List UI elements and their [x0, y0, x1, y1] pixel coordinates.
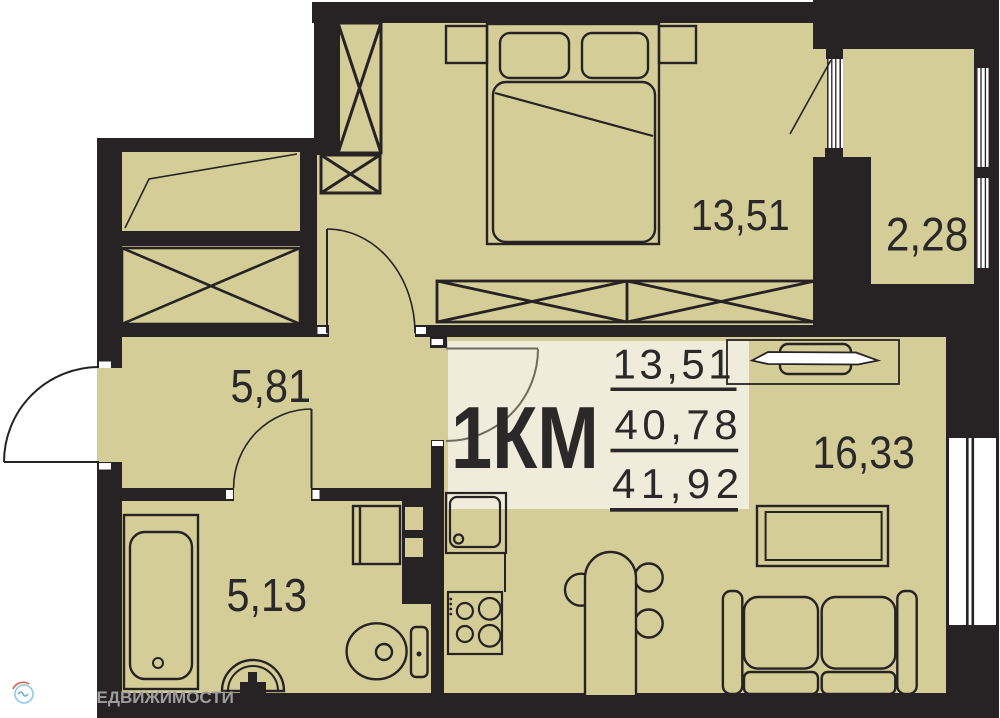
svg-text:ЕДВИЖИМОСТИ: ЕДВИЖИМОСТИ: [97, 688, 234, 707]
svg-text:40,78: 40,78: [615, 401, 743, 448]
svg-text:41,92: 41,92: [612, 460, 745, 507]
svg-text:5,81: 5,81: [231, 361, 312, 413]
svg-text:5,13: 5,13: [227, 570, 308, 622]
svg-text:13,51: 13,51: [691, 190, 790, 239]
svg-text:2,28: 2,28: [886, 210, 968, 262]
svg-text:13,51: 13,51: [613, 341, 736, 388]
svg-text:16,33: 16,33: [812, 428, 914, 478]
svg-text:1КМ: 1КМ: [451, 389, 599, 488]
